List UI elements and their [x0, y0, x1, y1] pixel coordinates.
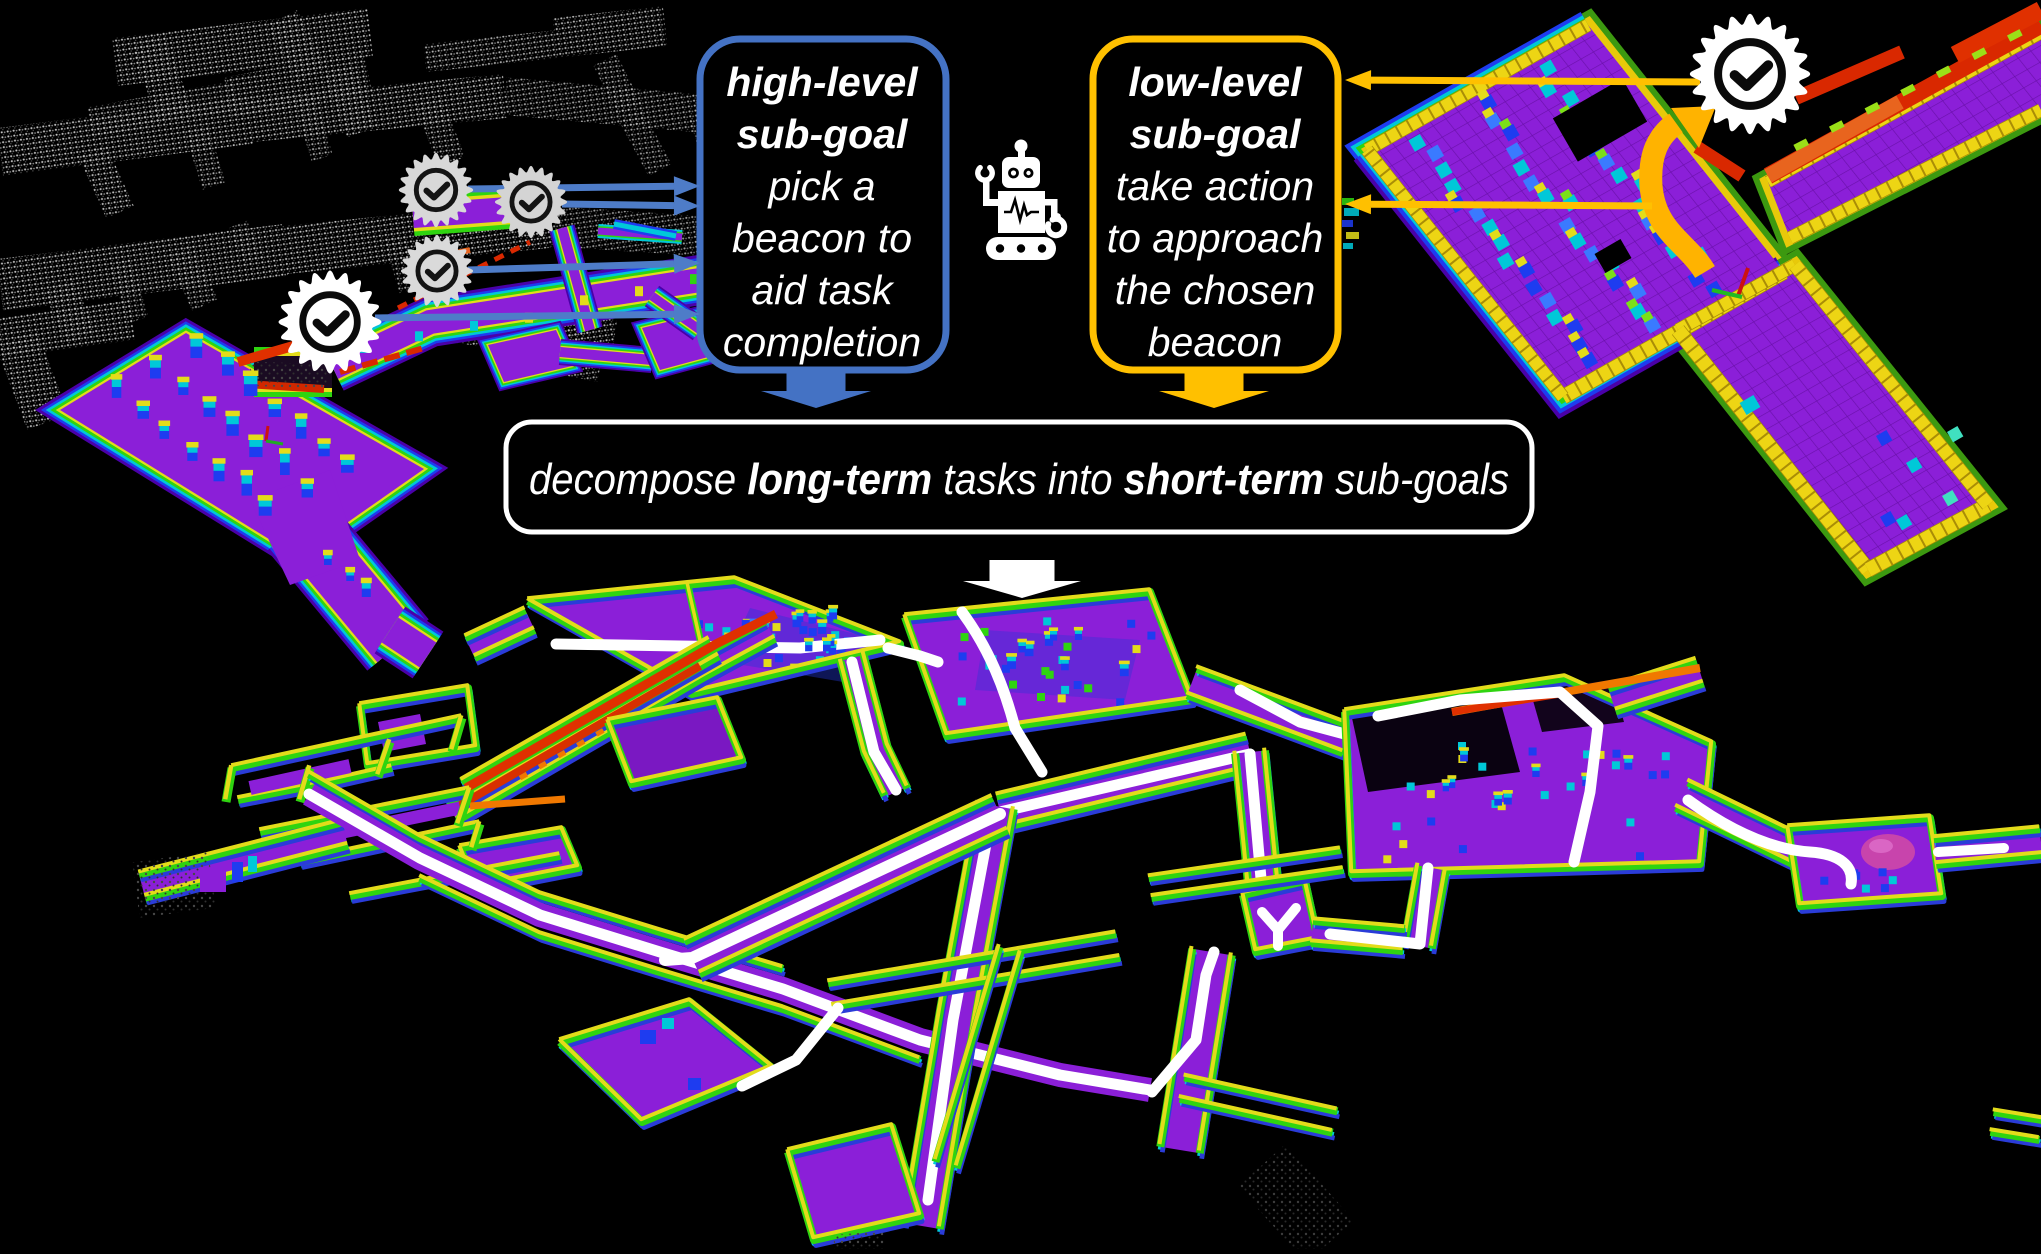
svg-text:pick a: pick a	[766, 163, 875, 209]
svg-text:high-level: high-level	[726, 59, 919, 105]
svg-text:decompose long-term tasks into: decompose long-term tasks into short-ter…	[529, 455, 1509, 504]
svg-text:take action: take action	[1116, 163, 1314, 209]
svg-text:sub-goal: sub-goal	[1130, 111, 1302, 157]
svg-text:beacon to: beacon to	[732, 215, 912, 261]
svg-text:to approach: to approach	[1107, 215, 1324, 261]
svg-text:beacon: beacon	[1148, 319, 1283, 365]
svg-text:completion: completion	[723, 319, 921, 365]
svg-text:sub-goal: sub-goal	[737, 111, 909, 157]
svg-text:aid task: aid task	[751, 267, 895, 313]
svg-text:low-level: low-level	[1128, 59, 1303, 105]
svg-text:the chosen: the chosen	[1115, 267, 1316, 313]
